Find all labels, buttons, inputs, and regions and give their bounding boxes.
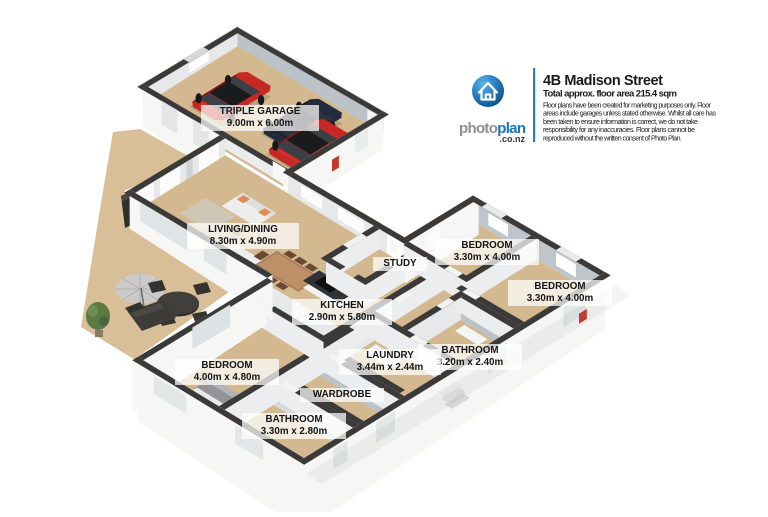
svg-text:4B Madison Street: 4B Madison Street: [543, 73, 663, 89]
svg-text:4.00m x 4.80m: 4.00m x 4.80m: [194, 372, 261, 383]
svg-text:Total approx. floor area 215.4: Total approx. floor area 215.4 sqm: [543, 89, 677, 100]
svg-text:BEDROOM: BEDROOM: [201, 360, 252, 371]
svg-text:TRIPLE GARAGE: TRIPLE GARAGE: [220, 106, 301, 117]
svg-text:LAUNDRY: LAUNDRY: [366, 350, 414, 361]
svg-text:BEDROOM: BEDROOM: [461, 240, 512, 251]
svg-text:3.30m x 4.00m: 3.30m x 4.00m: [454, 252, 521, 263]
svg-text:Floor plans have been created: Floor plans have been created for market…: [543, 102, 712, 110]
svg-text:areas include garages unless s: areas include garages unless stated othe…: [543, 110, 716, 118]
svg-text:reproduced without the written: reproduced without the written consent o…: [543, 134, 682, 142]
svg-text:BATHROOM: BATHROOM: [266, 414, 323, 425]
svg-text:3.30m x 2.80m: 3.30m x 2.80m: [261, 426, 328, 437]
svg-text:2.90m x 5.80m: 2.90m x 5.80m: [309, 312, 376, 323]
svg-text:BEDROOM: BEDROOM: [534, 281, 585, 292]
svg-text:9.00m x 6.00m: 9.00m x 6.00m: [227, 118, 294, 129]
svg-text:KITCHEN: KITCHEN: [320, 300, 364, 311]
svg-text:3.20m x 2.40m: 3.20m x 2.40m: [437, 357, 504, 368]
svg-text:WARDROBE: WARDROBE: [313, 389, 372, 400]
svg-text:3.44m x 2.44m: 3.44m x 2.44m: [357, 362, 424, 373]
svg-text:STUDY: STUDY: [383, 258, 417, 269]
svg-text:.co.nz: .co.nz: [499, 134, 525, 144]
svg-text:3.30m x 4.00m: 3.30m x 4.00m: [527, 293, 594, 304]
svg-text:BATHROOM: BATHROOM: [442, 345, 499, 356]
svg-text:LIVING/DINING: LIVING/DINING: [208, 224, 278, 235]
svg-text:8.30m x 4.90m: 8.30m x 4.90m: [210, 236, 277, 247]
svg-text:been taken to ensure informati: been taken to ensure information is corr…: [543, 118, 698, 126]
svg-text:responsibility for any inaccur: responsibility for any inaccuracies. Flo…: [543, 126, 695, 134]
